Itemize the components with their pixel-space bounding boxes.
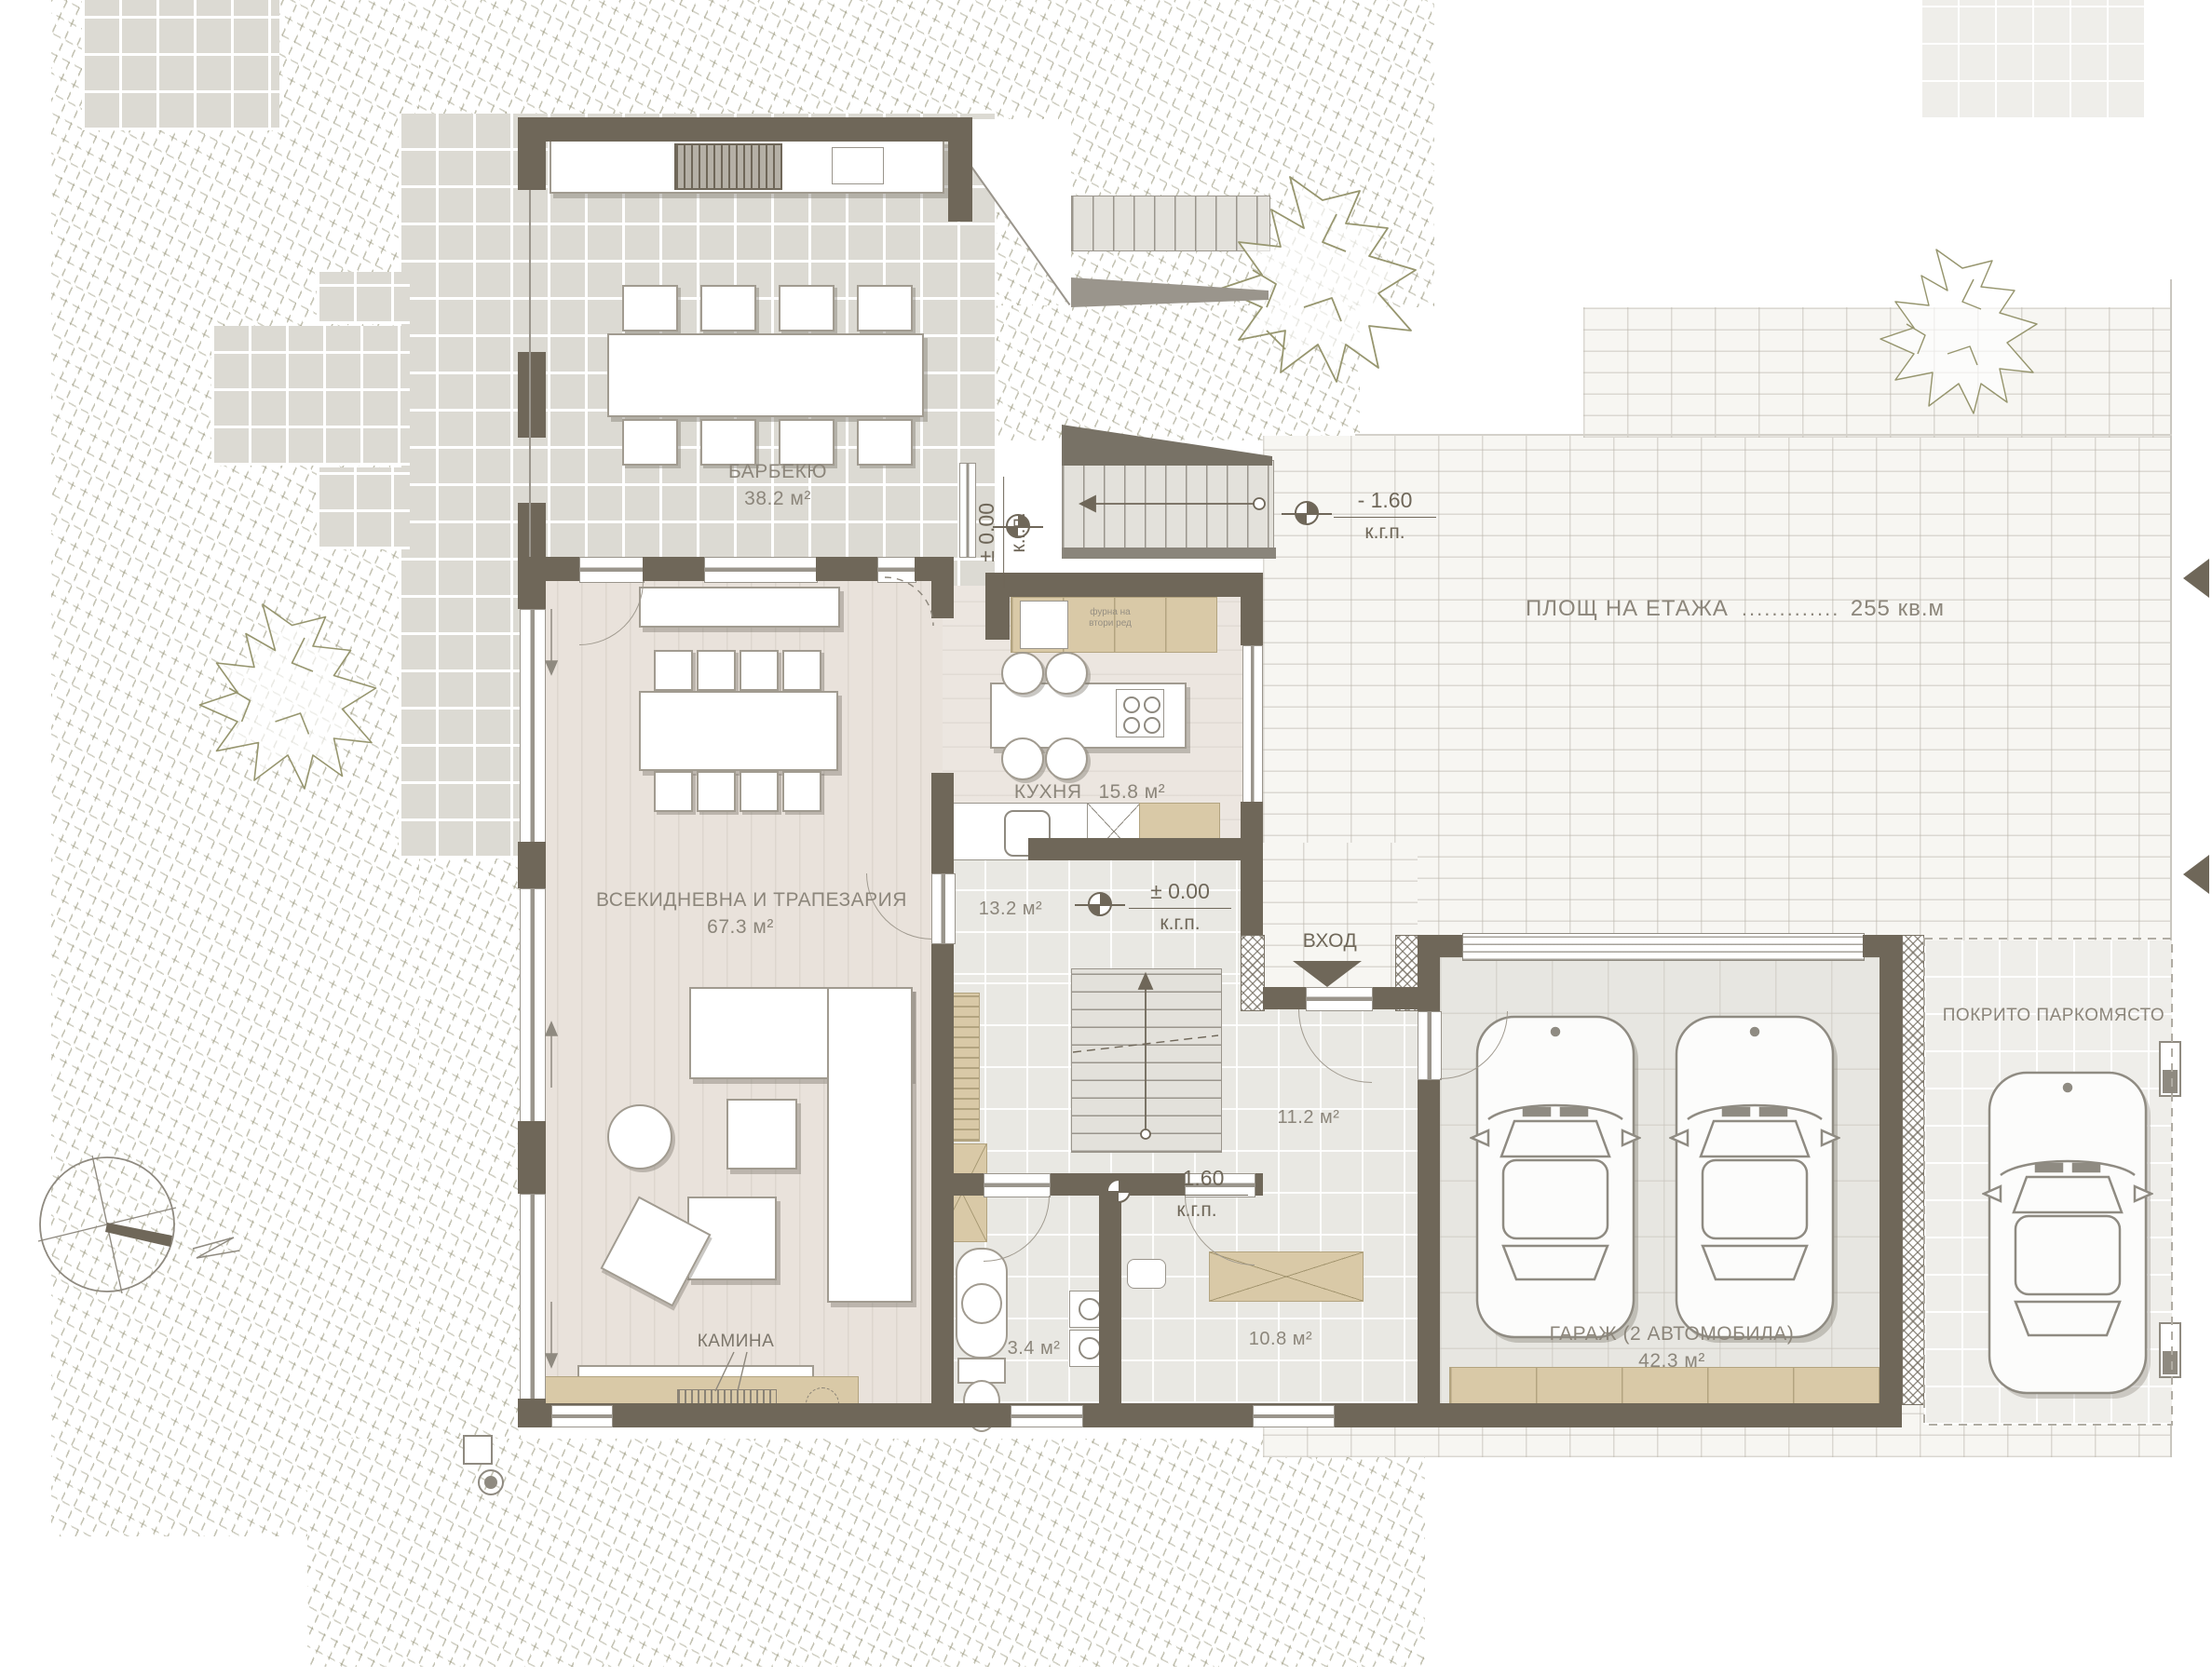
room-name: КУХНЯ — [1014, 778, 1082, 805]
room-name: БАРБЕКЮ — [671, 458, 885, 485]
kitchen-door-swing-dashed — [885, 577, 933, 626]
stair-arrow-exterior — [1080, 496, 1265, 511]
linework-overlay — [0, 0, 2212, 1677]
room-label-entry-hall: 13.2 м² — [959, 896, 1062, 922]
room-label-carport: ПОКРИТО ПАРКОМЯСТО — [1937, 1004, 2170, 1029]
room-label-inner-hall: 11.2 м² — [1257, 1104, 1360, 1130]
room-name: ПОКРИТО ПАРКОМЯСТО — [1943, 1006, 2165, 1025]
floor-area-note: ПЛОЩ НА ЕТАЖА ..........................… — [1526, 596, 1945, 622]
boundary-marker-icon — [2183, 855, 2209, 894]
fireplace-label: КАМИНА — [652, 1330, 820, 1355]
room-area: 10.8 м² — [1249, 1329, 1312, 1349]
room-name: ВСЕКИДНЕВНА И ТРАПЕЗАРИЯ — [596, 886, 885, 913]
room-area: 3.4 м² — [1008, 1338, 1061, 1359]
floor-plan: БАРБЕКЮ 38.2 м² ВСЕКИДНЕВНА И ТРАПЕЗАРИЯ… — [0, 0, 2212, 1677]
room-label-wc: 3.4 м² — [987, 1335, 1080, 1361]
room-area: 11.2 м² — [1278, 1107, 1340, 1128]
room-label-barbecue: БАРБЕКЮ 38.2 м² — [671, 458, 885, 513]
floor-area-leader: ..................................... — [1742, 597, 1838, 621]
floor-area-label: ПЛОЩ НА ЕТАЖА — [1526, 596, 1729, 622]
exterior-column — [464, 1436, 492, 1464]
fireplace-leaders — [715, 1352, 747, 1391]
room-label-living: ВСЕКИДНЕВНА И ТРАПЕЗАРИЯ 67.3 м² — [596, 886, 885, 941]
room-label-garage: ГАРАЖ (2 АВТОМОБИЛА) 42.3 м² — [1527, 1320, 1816, 1375]
window-arrows — [546, 609, 557, 1367]
level-marker-yard — [1295, 501, 1319, 525]
floor-area-value: 255 кв.м — [1851, 596, 1945, 622]
level-marker-entry — [1088, 892, 1112, 916]
room-label-utility: 10.8 м² — [1229, 1326, 1332, 1352]
room-label-kitchen: КУХНЯ 15.8 м² — [987, 778, 1192, 805]
level-text-entry: ± 0.00 к.г.п. — [1129, 879, 1231, 935]
stair-arrow-interior — [1073, 974, 1218, 1139]
stair-shadow-wedge — [1062, 425, 1272, 466]
boundary-marker-icon — [2183, 559, 2209, 598]
level-marker-stair-hall — [1106, 1179, 1131, 1203]
entrance-label: ВХОД — [1274, 927, 1386, 954]
level-text-yard: - 1.60 к.г.п. — [1334, 488, 1436, 544]
level-text-stair-hall: - 1.60 к.г.п. — [1146, 1166, 1248, 1222]
room-area: 13.2 м² — [979, 899, 1042, 919]
room-area: 38.2 м² — [671, 485, 885, 512]
level-text-terrace: ± 0.00 к.г.п. — [974, 477, 1030, 588]
room-name: ГАРАЖ (2 АВТОМОБИЛА) — [1527, 1320, 1816, 1347]
tree-icon — [200, 177, 2038, 789]
kitchen-note: фурна на втори ред — [1073, 607, 1147, 629]
compass-icon — [38, 1156, 239, 1293]
room-area: 15.8 м² — [1099, 778, 1166, 805]
room-area: 42.3 м² — [1527, 1347, 1816, 1374]
entrance-arrow-icon — [1293, 961, 1362, 987]
room-area: 67.3 м² — [596, 913, 885, 940]
drain-icon — [479, 1470, 503, 1494]
